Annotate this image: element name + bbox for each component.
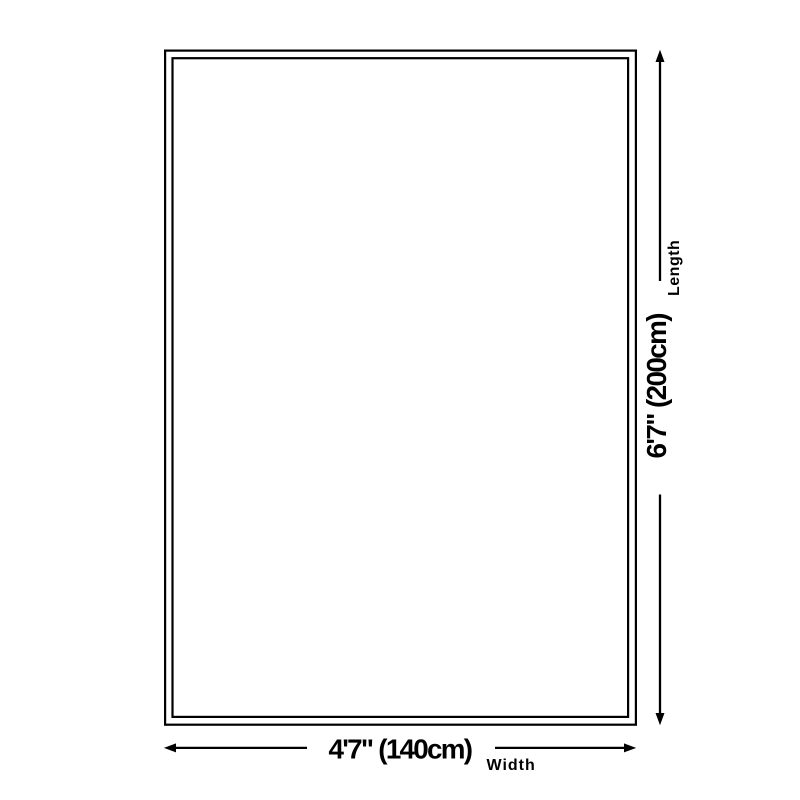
svg-text:Length: Length — [666, 240, 683, 296]
svg-text:4'7" (140cm): 4'7" (140cm) — [329, 734, 474, 765]
svg-text:6'7" (200cm): 6'7" (200cm) — [641, 313, 672, 459]
svg-text:Width: Width — [487, 757, 536, 774]
